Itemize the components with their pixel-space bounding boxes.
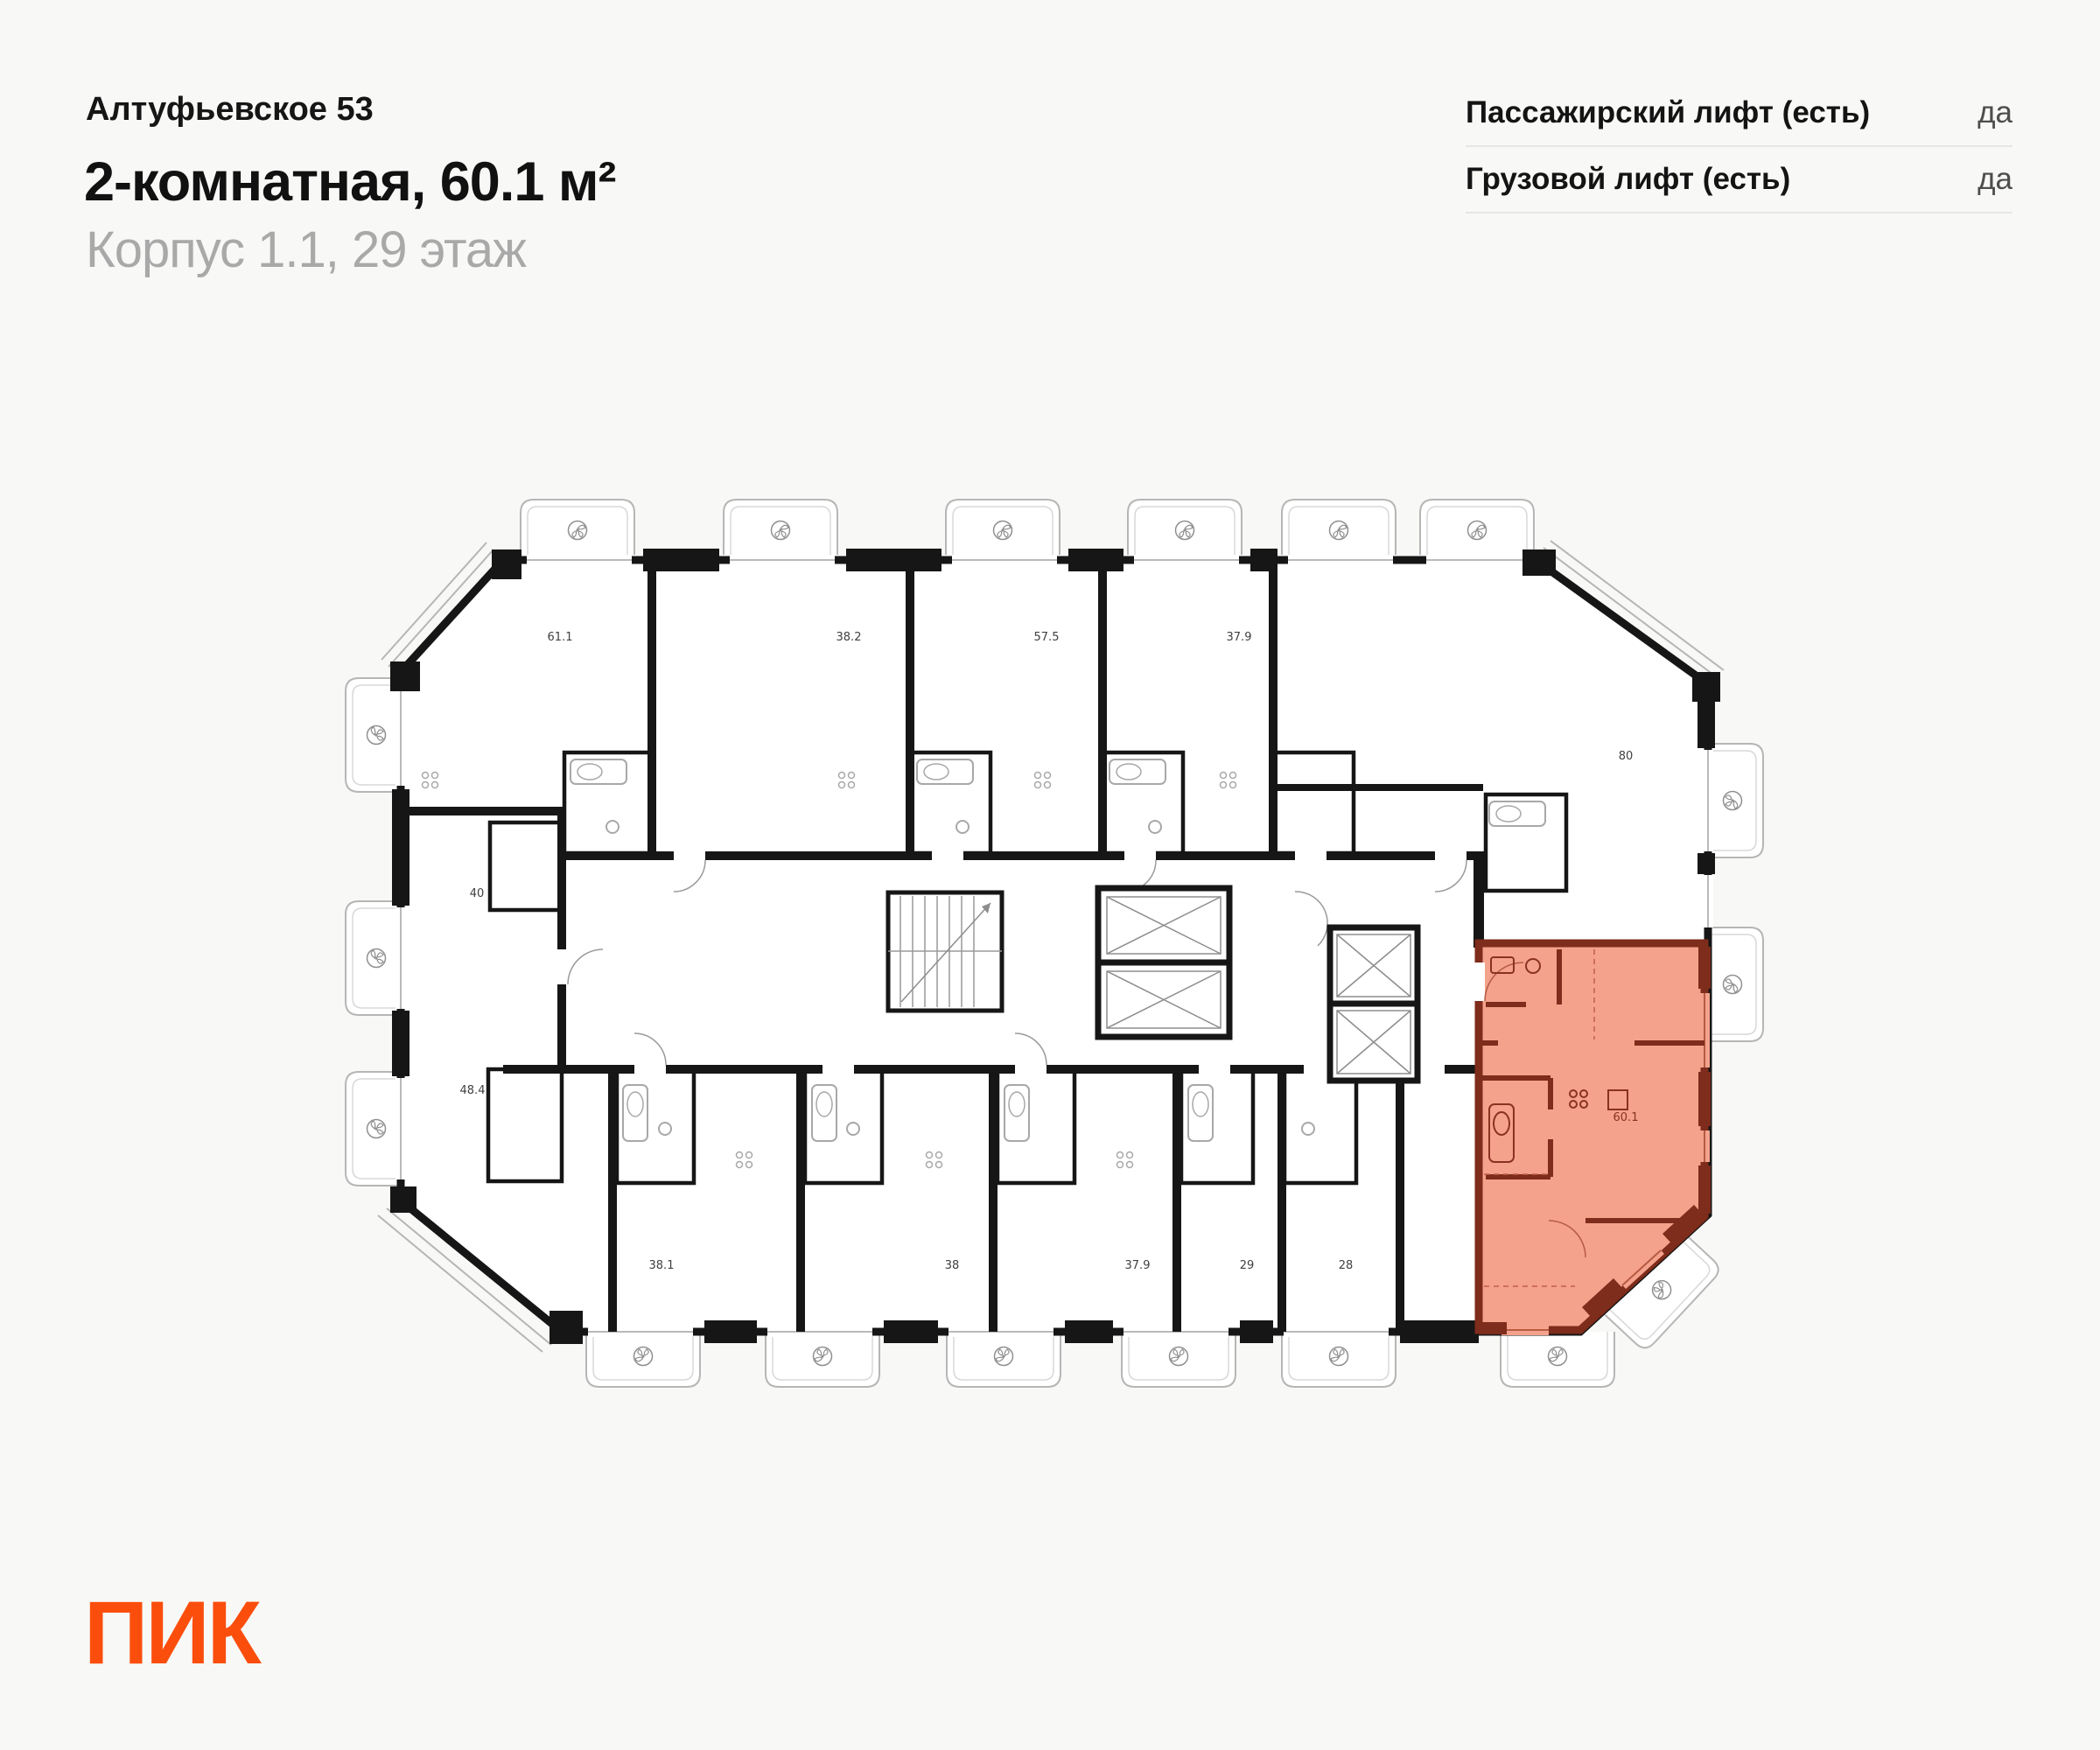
unit-area-label: 57.5 [1034, 631, 1060, 644]
page: Алтуфьевское 53 2-комнатная, 60.1 м² Кор… [0, 0, 2100, 1750]
unit-area-label: 40 [470, 887, 485, 900]
highlight-area-label: 60.1 [1613, 1111, 1639, 1124]
unit-area-label: 29 [1240, 1259, 1255, 1272]
floor-plan: 60.1 61.138.257.537.9804048.438.13837.92… [0, 0, 2100, 1750]
unit-area-label: 80 [1619, 750, 1634, 763]
unit-area-label: 61.1 [548, 631, 573, 644]
unit-area-label: 48.4 [460, 1084, 486, 1097]
unit-area-label: 38 [945, 1259, 960, 1272]
stair-core [888, 892, 1002, 1011]
unit-area-label: 37.9 [1227, 631, 1252, 644]
unit-area-label: 28 [1339, 1259, 1354, 1272]
unit-area-label: 38.1 [649, 1259, 675, 1272]
unit-area-label: 38.2 [836, 631, 862, 644]
pik-logo[interactable]: ПИК [84, 1582, 259, 1684]
unit-area-label: 37.9 [1125, 1259, 1151, 1272]
